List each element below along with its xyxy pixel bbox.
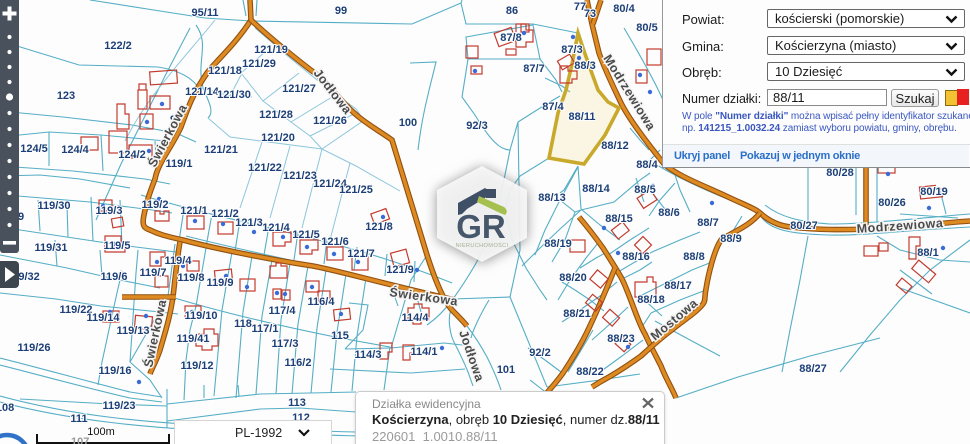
- svg-text:119/1: 119/1: [166, 158, 193, 170]
- svg-text:88/8: 88/8: [683, 251, 704, 263]
- svg-text:88/21: 88/21: [563, 308, 591, 320]
- svg-text:99: 99: [335, 5, 347, 17]
- svg-text:88/9: 88/9: [720, 233, 741, 245]
- svg-text:121/28: 121/28: [259, 109, 293, 121]
- svg-text:Świerkowa: Świerkowa: [389, 284, 460, 309]
- svg-text:116/4: 116/4: [308, 296, 336, 308]
- svg-text:121/7: 121/7: [347, 248, 375, 260]
- svg-text:116/2: 116/2: [285, 357, 312, 369]
- svg-text:88/5: 88/5: [634, 184, 655, 196]
- svg-text:88/15: 88/15: [605, 213, 633, 225]
- svg-text:88/13: 88/13: [538, 192, 566, 204]
- svg-text:118: 118: [234, 318, 252, 330]
- svg-text:88/3: 88/3: [574, 60, 595, 72]
- svg-text:87/8: 87/8: [500, 32, 521, 44]
- svg-text:Modrzewiowa: Modrzewiowa: [856, 216, 944, 236]
- svg-text:121/23: 121/23: [283, 170, 317, 182]
- svg-text:114/1: 114/1: [411, 346, 438, 358]
- svg-text:121/4: 121/4: [262, 222, 290, 234]
- svg-text:121/6: 121/6: [321, 236, 349, 248]
- svg-text:124/2: 124/2: [118, 149, 146, 161]
- svg-text:Jodłowa: Jodłowa: [311, 66, 355, 117]
- svg-text:121/3: 121/3: [235, 217, 263, 229]
- svg-text:119/13: 119/13: [116, 325, 149, 337]
- svg-text:121/9: 121/9: [386, 264, 414, 276]
- svg-text:121/21: 121/21: [204, 144, 238, 156]
- svg-text:119/6: 119/6: [101, 271, 128, 283]
- svg-text:GR: GR: [456, 208, 506, 245]
- svg-text:123: 123: [57, 90, 75, 102]
- svg-text:124/5: 124/5: [20, 143, 48, 155]
- svg-text:80/26: 80/26: [878, 197, 906, 209]
- svg-text:88/4: 88/4: [636, 159, 658, 171]
- svg-text:121/14: 121/14: [185, 86, 220, 98]
- svg-text:87/7: 87/7: [523, 63, 544, 75]
- svg-text:80/19: 80/19: [920, 186, 948, 198]
- svg-text:117/3: 117/3: [272, 338, 299, 350]
- svg-text:119/5: 119/5: [104, 240, 131, 252]
- svg-text:100: 100: [399, 117, 417, 129]
- svg-text:80/5: 80/5: [636, 22, 657, 34]
- svg-text:88/19: 88/19: [544, 238, 572, 250]
- svg-text:88/18: 88/18: [637, 294, 665, 306]
- svg-text:117/4: 117/4: [269, 305, 297, 317]
- svg-text:80/28: 80/28: [826, 167, 854, 179]
- svg-text:88/17: 88/17: [664, 280, 692, 292]
- svg-text:119/3: 119/3: [96, 205, 123, 217]
- svg-text:88/11: 88/11: [569, 111, 596, 123]
- svg-text:119/23: 119/23: [102, 400, 135, 412]
- svg-text:121/30: 121/30: [217, 89, 251, 101]
- svg-text:119/10: 119/10: [184, 310, 217, 322]
- svg-text:124/4: 124/4: [61, 144, 89, 156]
- svg-text:108: 108: [0, 402, 14, 414]
- svg-text:119/41: 119/41: [176, 333, 209, 345]
- svg-text:80/27: 80/27: [790, 220, 818, 232]
- svg-text:119/16: 119/16: [98, 365, 131, 377]
- svg-text:92/3: 92/3: [466, 120, 487, 132]
- svg-text:88/7: 88/7: [697, 217, 718, 229]
- svg-text:119/31: 119/31: [34, 242, 67, 254]
- svg-text:115: 115: [331, 330, 349, 342]
- svg-text:117/1: 117/1: [252, 323, 279, 335]
- svg-text:73: 73: [584, 8, 596, 20]
- svg-text:114/4: 114/4: [402, 312, 430, 324]
- svg-text:111: 111: [70, 413, 87, 425]
- svg-text:88/14: 88/14: [582, 183, 610, 195]
- svg-text:121/8: 121/8: [365, 221, 393, 233]
- svg-text:88/12: 88/12: [601, 140, 629, 152]
- svg-text:121/22: 121/22: [248, 162, 282, 174]
- svg-text:119/12: 119/12: [180, 360, 213, 372]
- svg-text:121/1: 121/1: [180, 205, 208, 217]
- svg-text:80/4: 80/4: [613, 3, 635, 15]
- svg-text:121/25: 121/25: [339, 184, 373, 196]
- svg-text:119/2: 119/2: [142, 199, 169, 211]
- svg-text:NIERUCHOMOŚCI: NIERUCHOMOŚCI: [456, 241, 509, 249]
- svg-text:122/2: 122/2: [104, 40, 132, 52]
- svg-text:121/26: 121/26: [313, 115, 347, 127]
- svg-text:119/4: 119/4: [165, 255, 193, 267]
- svg-text:119/7: 119/7: [140, 267, 167, 279]
- svg-text:92/2: 92/2: [529, 347, 550, 359]
- svg-text:88/1: 88/1: [917, 247, 938, 259]
- svg-text:121/27: 121/27: [282, 83, 316, 95]
- svg-text:88/22: 88/22: [576, 366, 604, 378]
- svg-text:87/4: 87/4: [542, 101, 564, 113]
- svg-text:88/27: 88/27: [799, 363, 827, 375]
- svg-text:88/6: 88/6: [658, 207, 679, 219]
- svg-text:121/29: 121/29: [242, 58, 276, 70]
- svg-text:121/19: 121/19: [254, 44, 288, 56]
- svg-text:114/3: 114/3: [355, 349, 382, 361]
- svg-text:119/8: 119/8: [178, 272, 205, 284]
- svg-text:87/3: 87/3: [561, 44, 582, 56]
- svg-text:119/26: 119/26: [17, 342, 50, 354]
- svg-text:119/9: 119/9: [207, 277, 234, 289]
- svg-text:119/14: 119/14: [86, 312, 120, 324]
- svg-text:95/11: 95/11: [192, 7, 219, 19]
- svg-text:119/30: 119/30: [37, 200, 70, 212]
- svg-text:121/20: 121/20: [261, 132, 295, 144]
- svg-text:113: 113: [288, 397, 306, 409]
- svg-text:88/16: 88/16: [622, 251, 650, 263]
- svg-text:121/18: 121/18: [208, 65, 242, 77]
- svg-text:101: 101: [497, 364, 515, 376]
- svg-text:121/5: 121/5: [292, 229, 320, 241]
- svg-text:88/20: 88/20: [559, 272, 587, 284]
- svg-text:86: 86: [506, 5, 518, 17]
- svg-text:88/23: 88/23: [607, 333, 635, 345]
